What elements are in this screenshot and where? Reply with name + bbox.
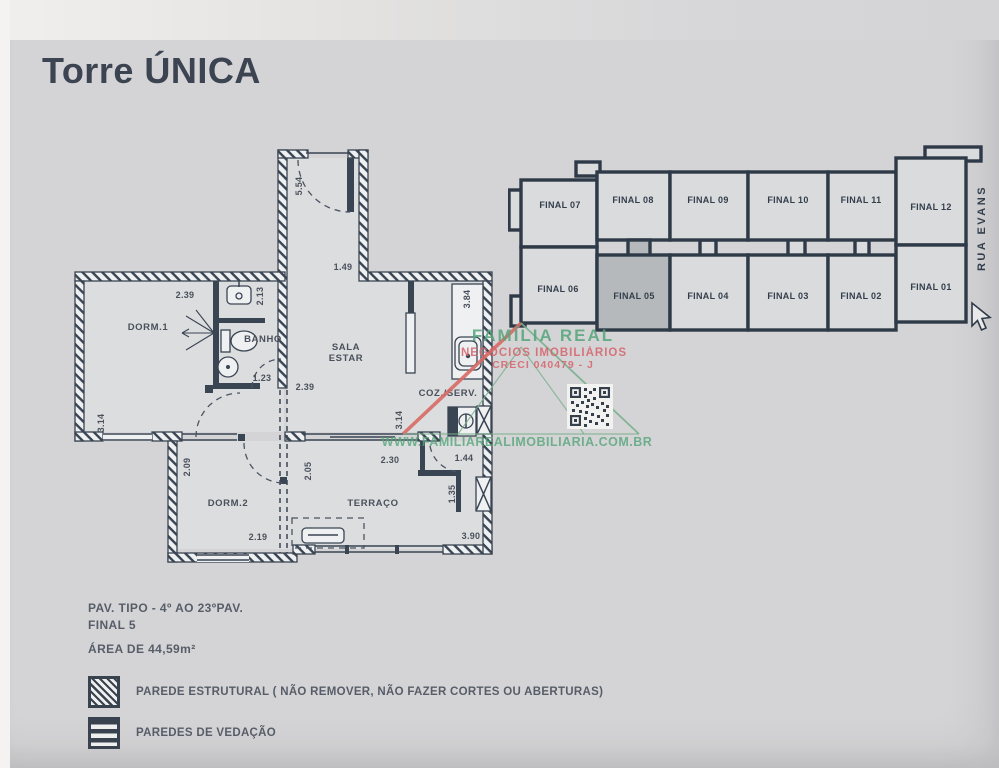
key-plan: FINAL 07 FINAL 08 FINAL 09 FINAL 10 FINA…	[508, 143, 999, 343]
washing-machine	[448, 407, 476, 436]
room-interiors	[84, 158, 492, 549]
dim-service-door: 1.44	[455, 453, 474, 463]
dim-terraco-width: 2.30	[381, 455, 400, 465]
street-label: RUA EVANS	[976, 185, 988, 271]
dim-service-height: 1.35	[447, 485, 457, 504]
unit-label-final02: FINAL 02	[840, 291, 881, 301]
unit-label-final12: FINAL 12	[910, 202, 951, 212]
dim-hall-width: 1.49	[334, 262, 353, 272]
photo-light-band	[0, 0, 999, 40]
info-final: FINAL 5	[88, 617, 243, 634]
dim-dorm1-height: 3.14	[96, 414, 106, 433]
unit-label-final09: FINAL 09	[687, 195, 728, 205]
dim-sala-width: 2.39	[296, 382, 315, 392]
info-pav: PAV. TIPO - 4º AO 23ºPAV.	[88, 600, 243, 617]
room-label-dorm2: DORM.2	[208, 498, 249, 509]
room-label-dorm1: DORM.1	[128, 322, 169, 333]
screenshot-canvas: Torre ÚNICA	[0, 0, 999, 768]
unit-label-final06: FINAL 06	[537, 284, 578, 294]
room-label-banho: BANHO	[244, 334, 282, 345]
legend-structural-row: PAREDE ESTRUTURAL ( NÃO REMOVER, NÃO FAZ…	[88, 676, 603, 708]
room-label-sala-1: SALA	[332, 342, 360, 353]
dim-terraco-bottom: 3.90	[462, 531, 481, 541]
info-area: ÁREA DE 44,59m²	[88, 641, 243, 658]
dim-dorm2-height: 2.09	[182, 458, 192, 477]
photo-white-edge	[0, 0, 10, 768]
key-plan-units	[509, 147, 981, 330]
unit-label-final11: FINAL 11	[841, 195, 882, 205]
dim-banho-depth: 1.23	[253, 373, 272, 383]
page-title: Torre ÚNICA	[42, 50, 261, 92]
structural-wall-icon	[88, 676, 120, 708]
watermark-creci: CRECI 040479 - J	[492, 359, 594, 371]
dim-banho-width: 2.13	[255, 287, 265, 306]
legend: PAREDE ESTRUTURAL ( NÃO REMOVER, NÃO FAZ…	[88, 676, 603, 758]
unit-label-final03: FINAL 03	[767, 291, 808, 301]
dim-coz-height: 3.84	[462, 290, 472, 309]
dim-dorm1-width: 2.39	[176, 290, 195, 300]
unit-label-final04: FINAL 04	[687, 291, 728, 301]
dim-dorm2-width: 2.19	[249, 532, 268, 542]
dim-sala-height: 3.14	[394, 411, 404, 430]
washbasin	[218, 357, 238, 377]
unit-label-final05: FINAL 05	[613, 291, 654, 301]
room-label-terraco: TERRAÇO	[347, 498, 398, 509]
pass-through-counter	[406, 313, 415, 373]
mouse-cursor-icon	[972, 303, 990, 330]
legend-structural-label: PAREDE ESTRUTURAL ( NÃO REMOVER, NÃO FAZ…	[136, 686, 603, 698]
partition-wall-icon	[88, 717, 120, 749]
room-label-coz: COZ./SERV.	[419, 388, 478, 399]
legend-vedacao-label: PAREDES DE VEDAÇÃO	[136, 727, 276, 739]
legend-vedacao-row: PAREDES DE VEDAÇÃO	[88, 717, 603, 749]
room-label-sala-2: ESTAR	[329, 353, 364, 364]
plan-info: PAV. TIPO - 4º AO 23ºPAV. FINAL 5 ÁREA D…	[88, 600, 243, 658]
unit-label-final01: FINAL 01	[910, 282, 951, 292]
unit-label-final10: FINAL 10	[767, 195, 808, 205]
unit-label-final08: FINAL 08	[612, 195, 653, 205]
dim-terraco-left: 2.05	[303, 462, 313, 481]
dim-hall-height: 5.54	[294, 177, 304, 196]
qr-code	[567, 384, 613, 429]
floor-plan: DORM.1 BANHO SALA ESTAR COZ./SERV. DORM.…	[60, 140, 505, 575]
unit-label-final07: FINAL 07	[539, 200, 580, 210]
